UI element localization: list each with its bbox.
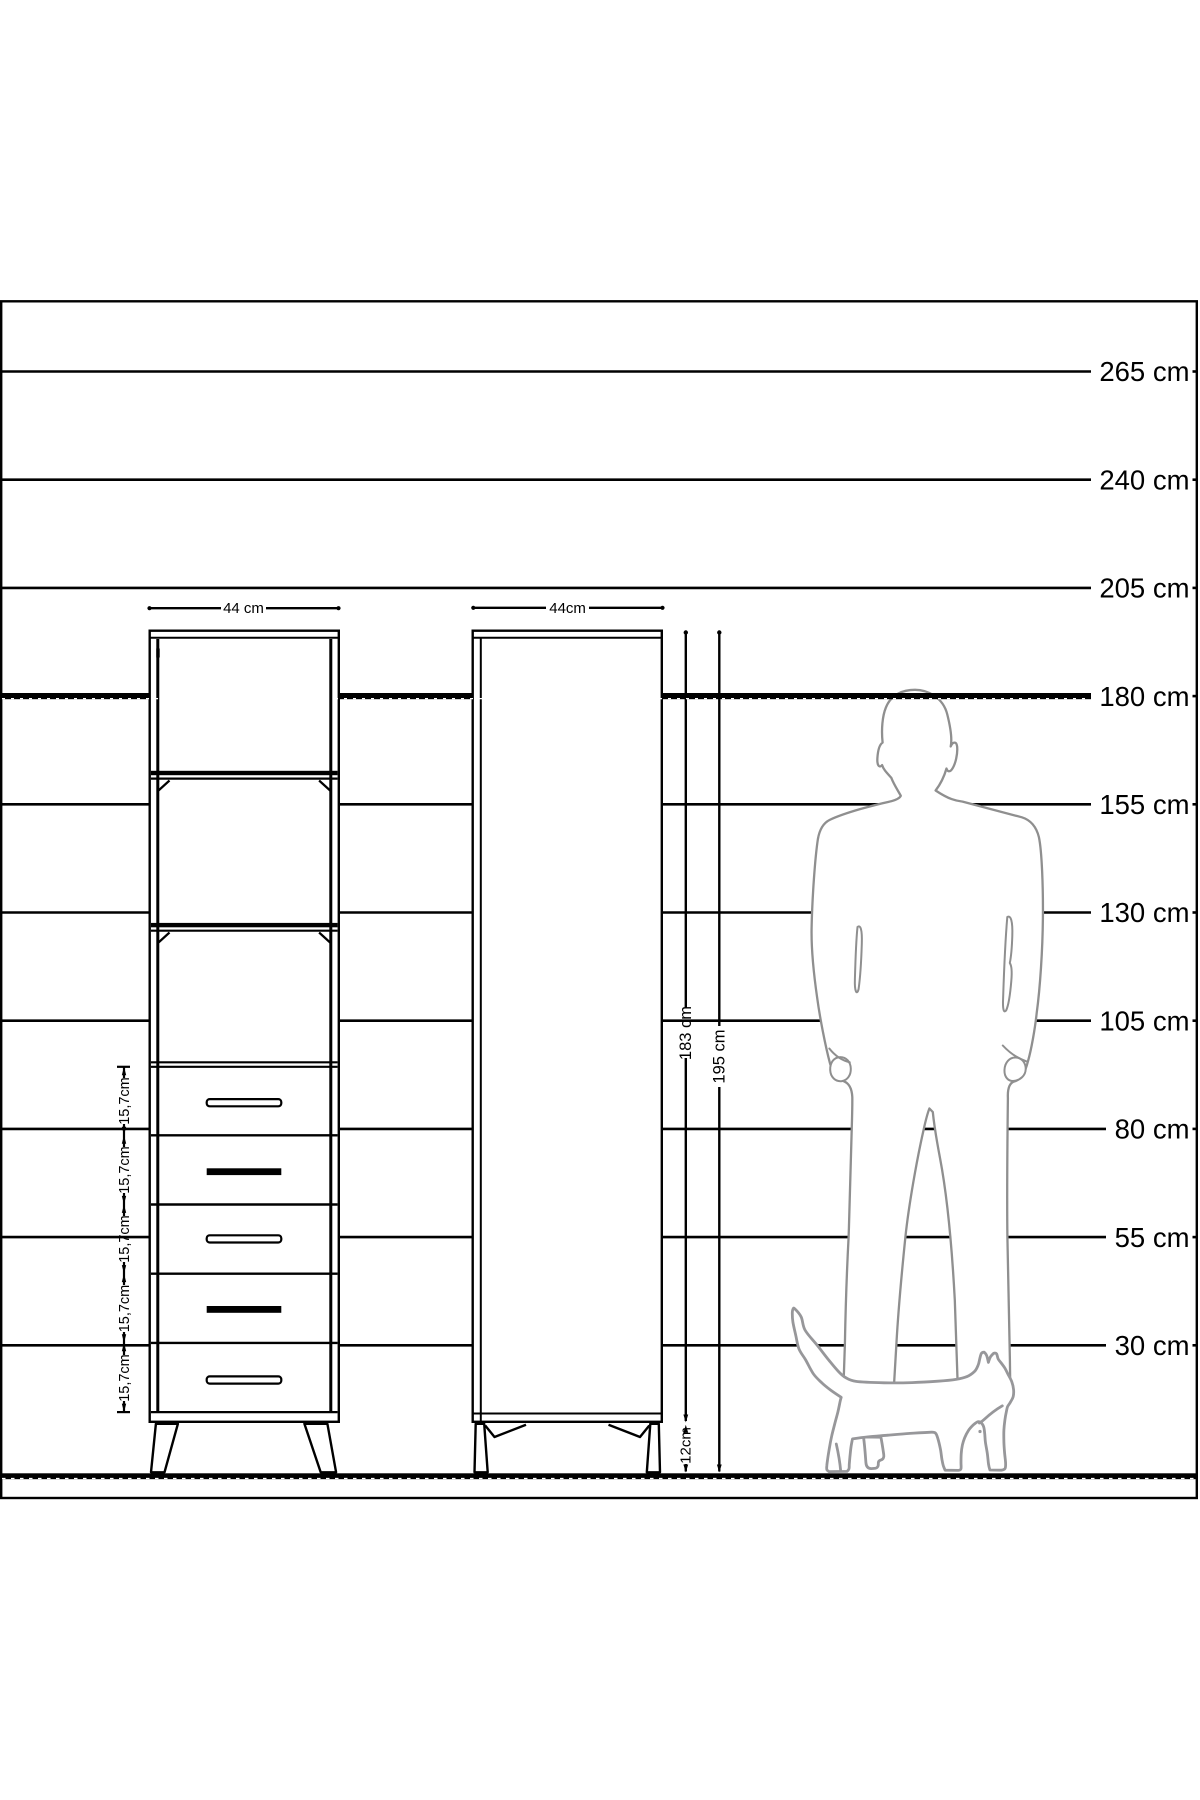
svg-text:15,7cm: 15,7cm <box>117 1146 133 1194</box>
svg-text:15,7cm: 15,7cm <box>117 1215 133 1263</box>
svg-text:205 cm: 205 cm <box>1099 573 1189 604</box>
svg-text:15,7cm: 15,7cm <box>117 1354 133 1402</box>
svg-text:180 cm: 180 cm <box>1099 681 1189 712</box>
svg-text:183 cm: 183 cm <box>677 1006 695 1060</box>
svg-text:12cm: 12cm <box>678 1427 695 1464</box>
svg-text:155 cm: 155 cm <box>1099 789 1189 820</box>
svg-text:44cm: 44cm <box>549 600 586 617</box>
svg-text:240 cm: 240 cm <box>1099 464 1189 495</box>
svg-text:195 cm: 195 cm <box>710 1029 728 1083</box>
svg-text:105 cm: 105 cm <box>1099 1005 1189 1036</box>
svg-text:265 cm: 265 cm <box>1099 356 1189 387</box>
svg-text:130 cm: 130 cm <box>1099 897 1189 928</box>
svg-text:44 cm: 44 cm <box>223 600 264 617</box>
svg-text:55 cm: 55 cm <box>1115 1222 1190 1253</box>
svg-text:80 cm: 80 cm <box>1115 1114 1190 1145</box>
svg-text:30 cm: 30 cm <box>1115 1330 1190 1361</box>
svg-text:15,7cm: 15,7cm <box>117 1077 133 1125</box>
svg-text:15,7cm: 15,7cm <box>117 1285 133 1333</box>
